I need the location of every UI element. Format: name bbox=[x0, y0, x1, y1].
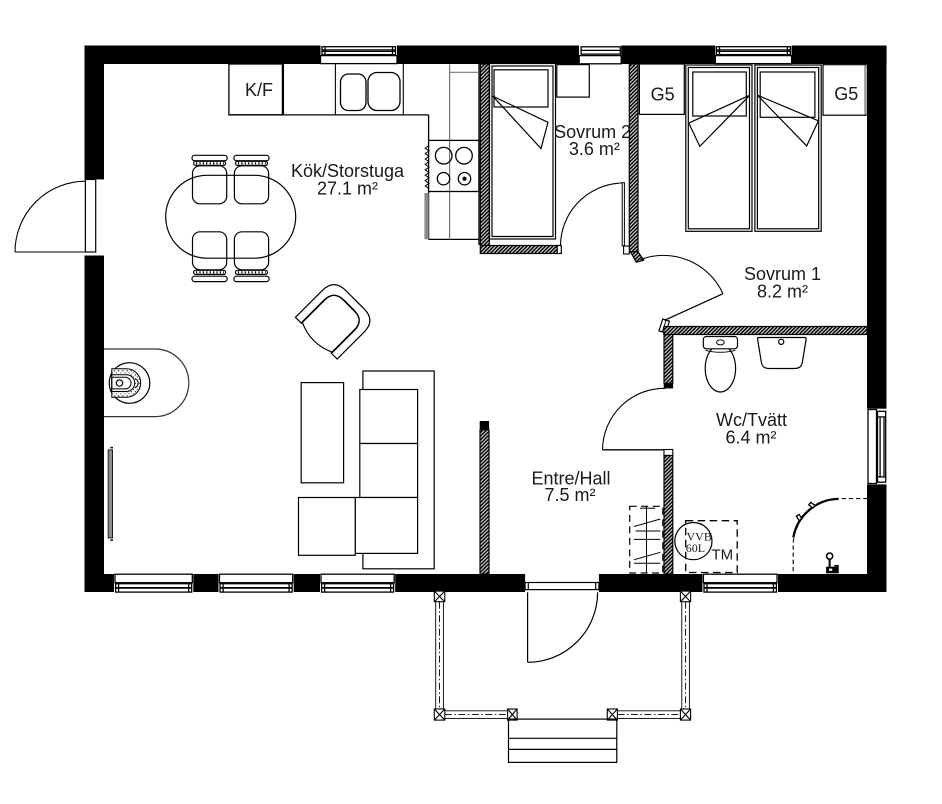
svg-text:TM: TM bbox=[712, 547, 734, 564]
svg-text:8.2 m²: 8.2 m² bbox=[757, 282, 808, 302]
svg-text:3.6 m²: 3.6 m² bbox=[569, 139, 620, 159]
svg-text:6.4 m²: 6.4 m² bbox=[725, 428, 776, 448]
svg-text:7.5 m²: 7.5 m² bbox=[544, 485, 595, 505]
svg-text:27.1 m²: 27.1 m² bbox=[317, 179, 378, 199]
svg-text:G5: G5 bbox=[834, 84, 858, 104]
svg-text:K/F: K/F bbox=[245, 80, 273, 100]
svg-text:60L: 60L bbox=[686, 541, 705, 555]
svg-text:G5: G5 bbox=[651, 85, 675, 105]
